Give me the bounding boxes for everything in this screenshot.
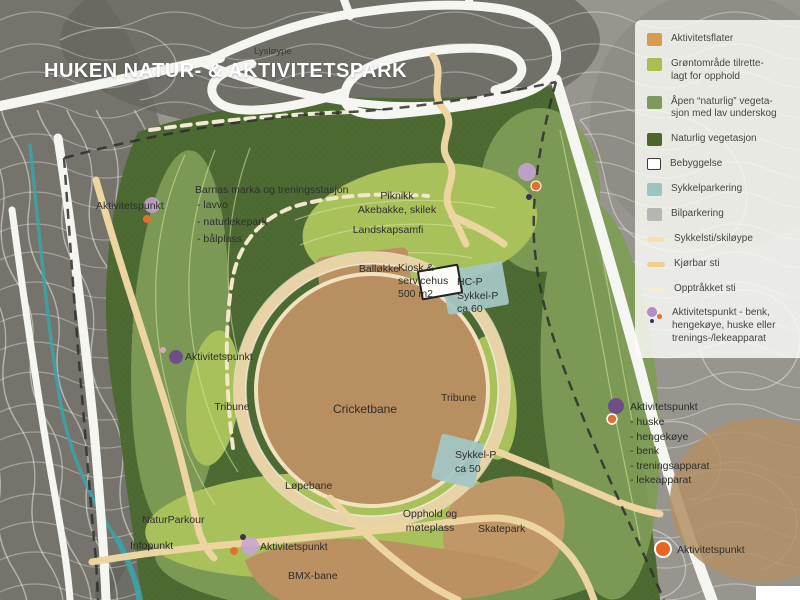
site-plan-slide: HUKEN NATUR- & AKTIVITETSPARK Lysløype A… xyxy=(0,0,800,600)
activity-point-swatch xyxy=(647,307,663,325)
page-title: HUKEN NATUR- & AKTIVITETSPARK xyxy=(44,60,407,83)
drivable-path-swatch xyxy=(647,262,665,267)
label-opphold-moteplass: Opphold og møteplass xyxy=(380,507,480,535)
legend-item-naturlig-vegetasjon: Naturlig vegetasjon xyxy=(647,132,794,146)
label-skatepark: Skatepark xyxy=(478,523,525,537)
label-lysloype: Lysløype xyxy=(254,46,292,58)
label-bmx-bane: BMX-bane xyxy=(288,570,338,584)
legend-item-bilparkering: Bilparkering xyxy=(647,207,794,221)
activity-point-se xyxy=(655,541,671,557)
label-aktivitetspunkt-e: Aktivitetspunkt xyxy=(630,401,698,415)
dark-dot-icon xyxy=(650,319,654,323)
orange-dot-icon xyxy=(657,314,662,319)
label-aktivitetspunkt-s: Aktivitetspunkt xyxy=(260,541,328,555)
label-cricketbane: Cricketbane xyxy=(310,402,420,418)
bike-ski-trail-swatch xyxy=(647,237,665,242)
open-vegetation-swatch xyxy=(647,96,662,109)
label-naturparkour: NaturParkour xyxy=(142,514,204,528)
legend-item-apen-vegetasjon: Åpen “naturlig” vegeta- sjon med lav und… xyxy=(647,95,794,122)
page-corner xyxy=(756,586,800,600)
legend-item-sykkelparkering: Sykkelparkering xyxy=(647,182,794,196)
label-tribune-left: Tribune xyxy=(197,401,267,415)
label-barnas-list: - lavvo - naturlekepark - bålplass xyxy=(197,197,267,248)
legend-panel: Aktivitetsflater Grøntområde tilrette- l… xyxy=(635,20,800,358)
purple-dot-icon xyxy=(647,307,657,317)
label-aktivitetspunkt-w: Aktivitetspunkt xyxy=(185,351,253,365)
label-aktivitetspunkt-e-list: - huske - hengekøye - benk - treningsapp… xyxy=(630,415,709,488)
legend-item-aktivitetsflater: Aktivitetsflater xyxy=(647,32,794,46)
label-tribune-right: Tribune xyxy=(441,392,476,406)
natural-vegetation-swatch xyxy=(647,133,662,146)
label-lopebane: Løpebane xyxy=(285,480,332,494)
legend-item-opptrakket-sti: Opptråkket sti xyxy=(647,282,794,296)
label-kiosk: Kiosk & servicehus 500 m2 xyxy=(398,262,448,301)
trampled-path-swatch xyxy=(647,287,665,292)
legend-item-grontomrade: Grøntområde tilrette- lagt for opphold xyxy=(647,57,794,84)
label-infopunkt: Infopunkt xyxy=(130,540,173,554)
label-landskapsamfi: Landskapsamfi xyxy=(338,224,438,238)
green-recreation-swatch xyxy=(647,58,662,71)
label-aktivitetspunkt-nw: Aktivitetspunkt xyxy=(96,200,164,214)
car-parking-swatch xyxy=(647,208,662,221)
label-sykkel-parking-south: Sykkel-P ca 50 xyxy=(455,449,496,476)
label-aktivitetspunkt-se: Aktivitetspunkt xyxy=(677,544,745,558)
label-barnas-marka: Barnas marka og treningsstasjon xyxy=(195,184,349,198)
legend-item-kjorbar-sti: Kjørbar sti xyxy=(647,257,794,271)
legend-item-sykkelsti: Sykkelsti/skiløype xyxy=(647,232,794,246)
bike-parking-swatch xyxy=(647,183,662,196)
activity-surface-swatch xyxy=(647,33,662,46)
legend-item-bebyggelse: Bebyggelse xyxy=(647,157,794,171)
label-hcp-parking: HC-P Sykkel-P ca 60 xyxy=(457,276,498,317)
label-piknikk: Piknikk Akebakke, skilek xyxy=(342,190,452,217)
legend-item-aktivitetspunkt: Aktivitetspunkt - benk, hengekøye, huske… xyxy=(647,306,794,345)
building-swatch xyxy=(647,158,661,170)
